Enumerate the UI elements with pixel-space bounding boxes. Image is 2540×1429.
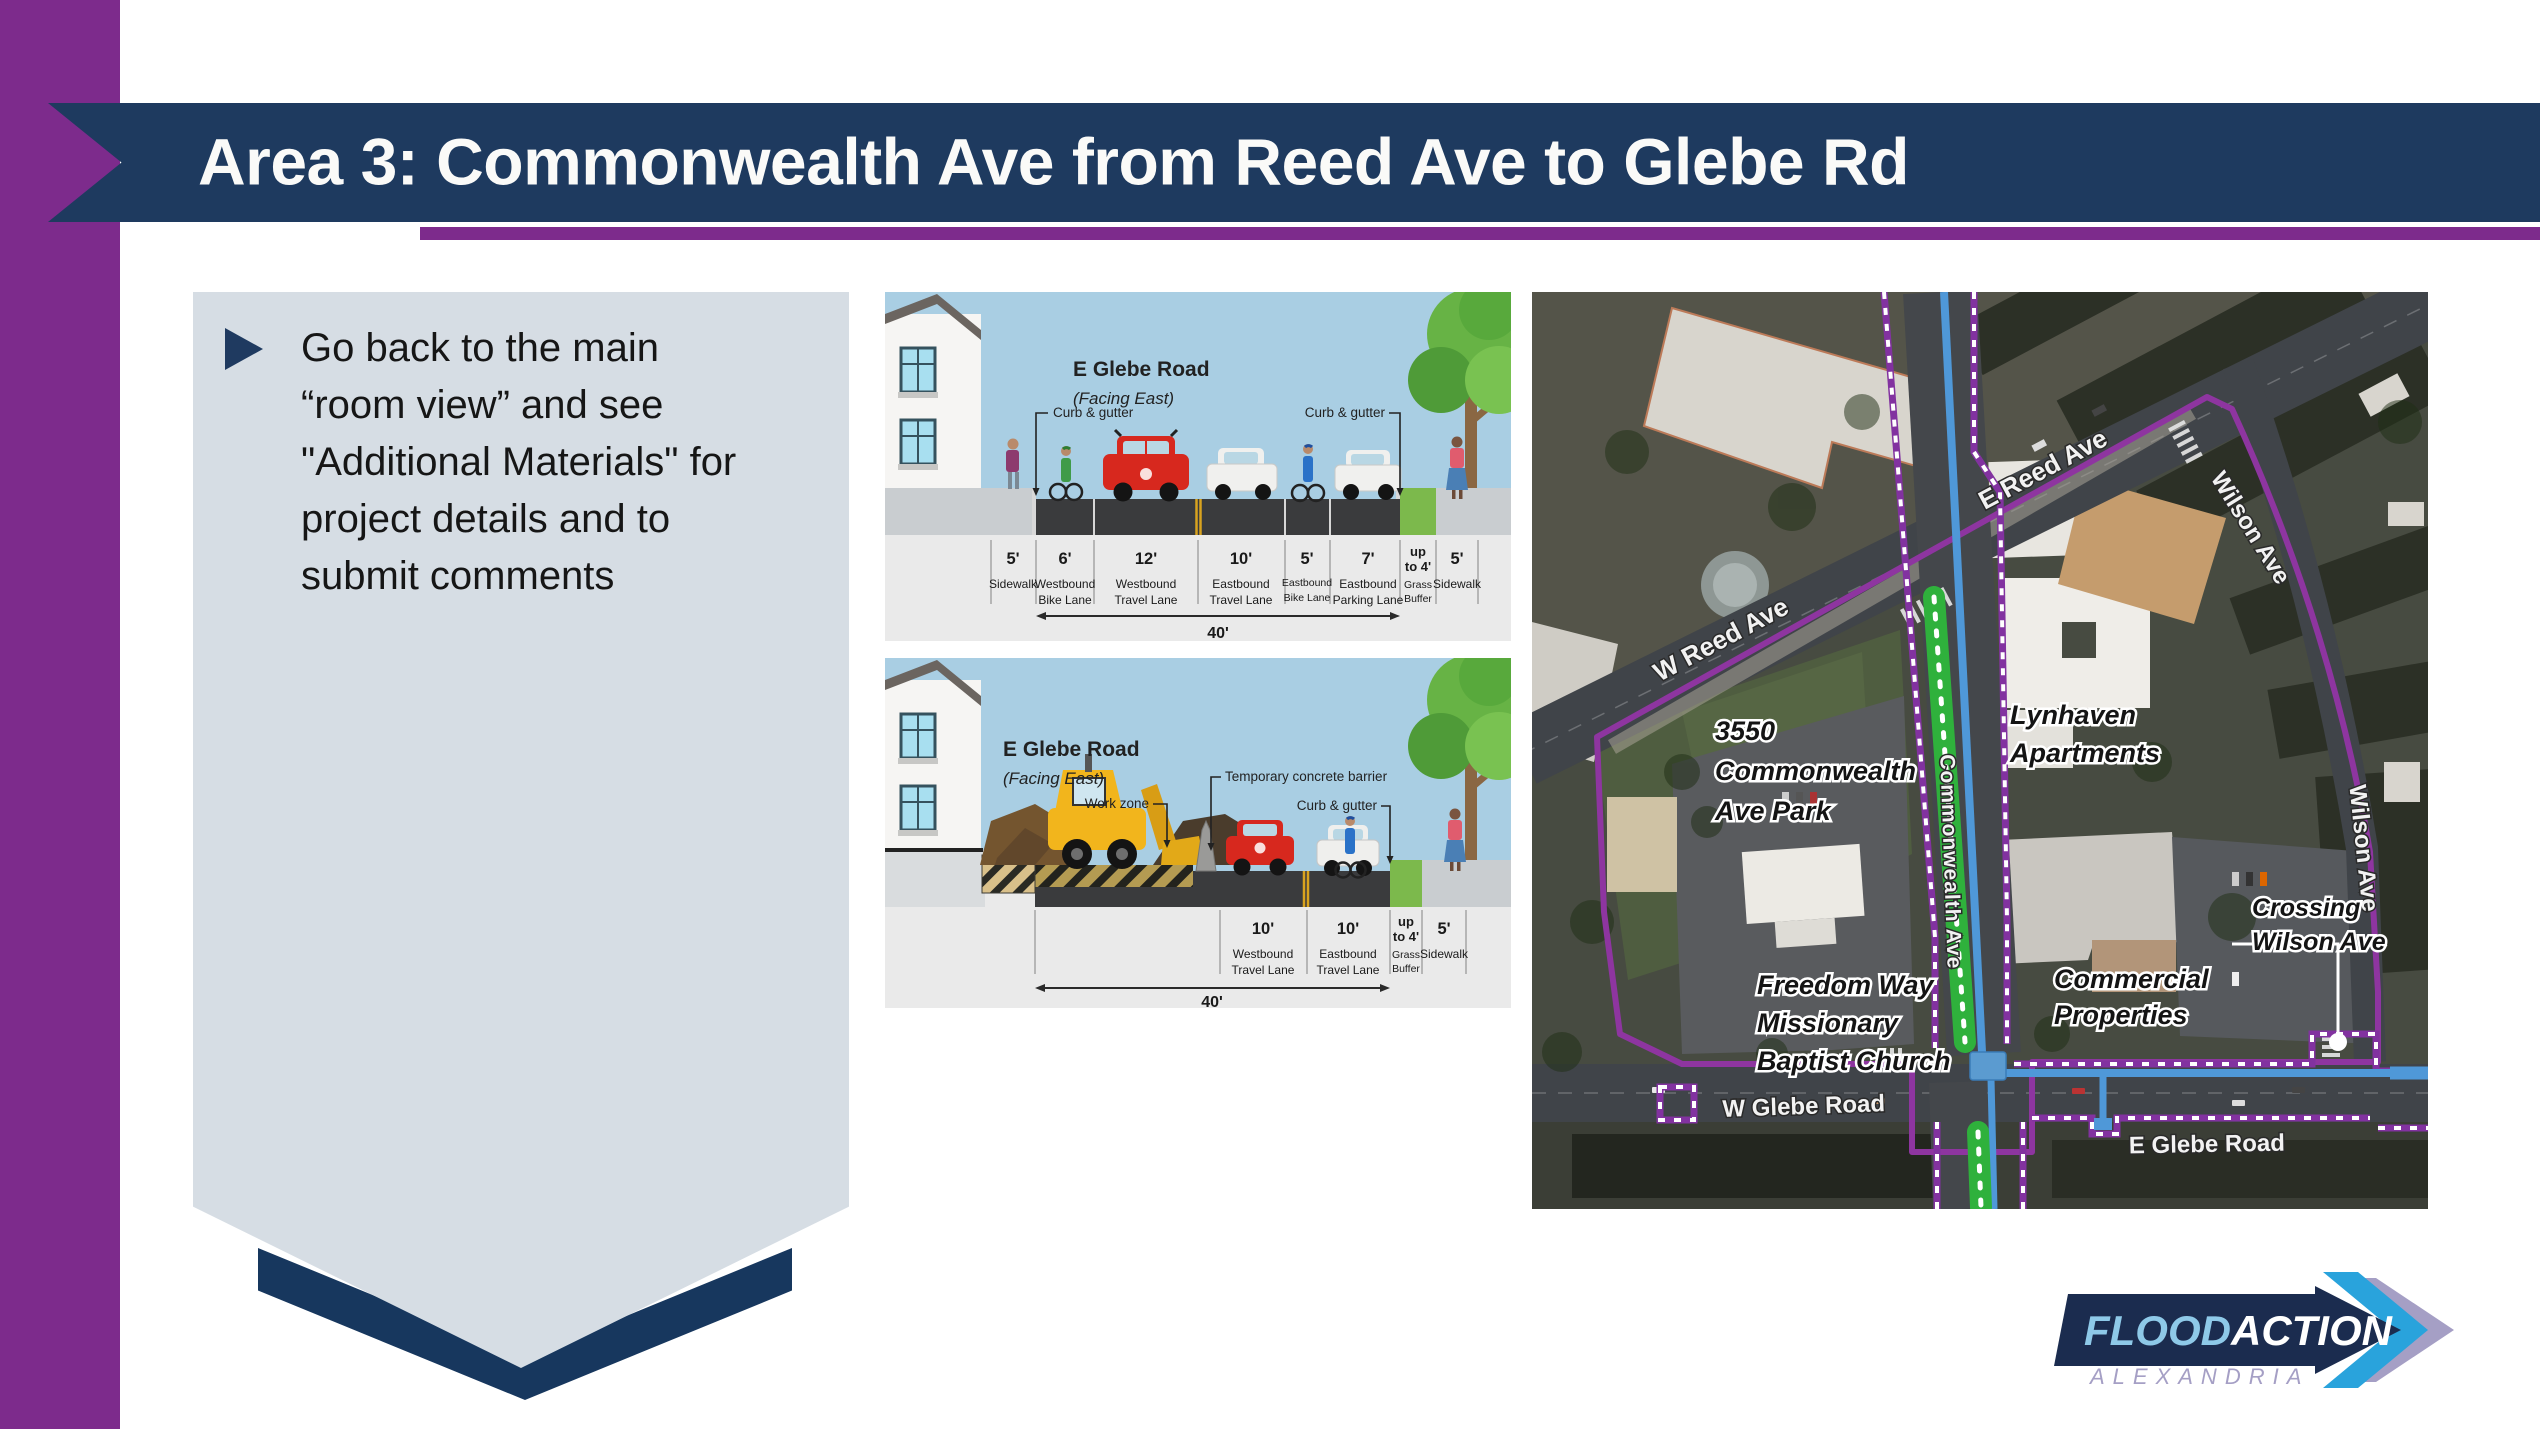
- label-w-glebe: W Glebe Road: [1722, 1090, 1886, 1123]
- svg-text:Westbound: Westbound: [1116, 577, 1177, 591]
- sidewalk-right: [1436, 488, 1511, 535]
- diagram-title: E Glebe Road: [1073, 358, 1210, 381]
- building-illustration: [885, 660, 981, 850]
- logo-wordmark: FLOODACTION: [2084, 1307, 2394, 1354]
- svg-text:Travel Lane: Travel Lane: [1317, 963, 1380, 977]
- banner-underline: [420, 227, 2540, 240]
- callout-work-zone: Work zone: [1085, 796, 1149, 811]
- svg-text:Grass: Grass: [1392, 949, 1420, 961]
- floodaction-logo: FLOODACTION ALEXANDRIA: [2028, 1268, 2468, 1408]
- label-e-glebe: E Glebe Road: [2129, 1130, 2285, 1160]
- svg-text:10': 10': [1337, 920, 1359, 938]
- svg-text:Travel Lane: Travel Lane: [1232, 963, 1295, 977]
- svg-text:Parking Lane: Parking Lane: [1333, 593, 1404, 607]
- svg-text:10': 10': [1252, 920, 1274, 938]
- label-park: 3550: [1715, 716, 1775, 746]
- label-church: Freedom Way: [1757, 970, 1936, 1000]
- callout-curb-left: Curb & gutter: [1053, 405, 1134, 420]
- svg-text:Missionary: Missionary: [1757, 1008, 1900, 1038]
- svg-text:Properties: Properties: [2054, 1000, 2188, 1030]
- stream-node: [1970, 1052, 2006, 1080]
- diagram-title: E Glebe Road: [1003, 738, 1140, 761]
- instruction-line: submit comments: [301, 548, 736, 605]
- svg-text:Ave Park: Ave Park: [1714, 796, 1833, 826]
- svg-text:Westbound: Westbound: [1035, 577, 1096, 591]
- svg-text:Eastbound: Eastbound: [1319, 947, 1376, 961]
- label-lynhaven: Lynhaven: [2010, 700, 2136, 730]
- diagram-subtitle: (Facing East): [1003, 769, 1104, 788]
- title-banner: Area 3: Commonwealth Ave from Reed Ave t…: [48, 103, 2540, 222]
- svg-text:up: up: [1410, 544, 1426, 559]
- svg-text:Eastbound: Eastbound: [1282, 577, 1332, 589]
- callout-curb-right: Curb & gutter: [1305, 405, 1386, 420]
- svg-text:5': 5': [1437, 920, 1450, 938]
- svg-text:to 4': to 4': [1405, 559, 1431, 574]
- svg-text:12': 12': [1135, 550, 1157, 568]
- instruction-panel: Go back to the main “room view” and see …: [193, 292, 849, 1368]
- cross-section-existing: E Glebe Road (Facing East) Curb & gutter…: [885, 292, 1511, 641]
- svg-text:Travel Lane: Travel Lane: [1210, 593, 1273, 607]
- grass-buffer: [1400, 488, 1436, 535]
- instruction-line: project details and to: [301, 491, 736, 548]
- svg-text:5': 5': [1450, 550, 1463, 568]
- sidewalk-right: [1422, 860, 1511, 907]
- roadway: [1036, 499, 1400, 535]
- bullet-row: Go back to the main “room view” and see …: [225, 320, 736, 605]
- instruction-line: “room view” and see: [301, 377, 736, 434]
- slide: Area 3: Commonwealth Ave from Reed Ave t…: [0, 0, 2540, 1429]
- callout-barrier: Temporary concrete barrier: [1225, 769, 1388, 784]
- svg-text:5': 5': [1006, 550, 1019, 568]
- svg-text:Travel Lane: Travel Lane: [1115, 593, 1178, 607]
- building-sw: [1607, 797, 1677, 892]
- svg-text:up: up: [1398, 914, 1414, 929]
- svg-text:Wilson Ave: Wilson Ave: [2252, 928, 2386, 956]
- svg-text:Baptist Church: Baptist Church: [1757, 1046, 1951, 1076]
- svg-text:40': 40': [1201, 994, 1223, 1008]
- svg-text:Apartments: Apartments: [2009, 738, 2160, 768]
- svg-text:Sidewalk: Sidewalk: [989, 577, 1038, 591]
- svg-text:Sidewalk: Sidewalk: [1420, 947, 1469, 961]
- logo-city: ALEXANDRIA: [2088, 1364, 2309, 1389]
- svg-text:Commonwealth: Commonwealth: [1715, 756, 1916, 786]
- svg-text:Bike Lane: Bike Lane: [1284, 592, 1331, 604]
- grass-buffer: [1390, 860, 1422, 907]
- svg-text:10': 10': [1230, 550, 1252, 568]
- closed-sidewalk: [885, 850, 985, 907]
- callout-curb: Curb & gutter: [1297, 798, 1378, 813]
- work-zone-hatch: [1035, 865, 1193, 887]
- cross-section-construction: E Glebe Road (Facing East) Work zone Tem…: [885, 658, 1511, 1008]
- instruction-text: Go back to the main “room view” and see …: [301, 320, 736, 605]
- svg-text:Eastbound: Eastbound: [1339, 577, 1396, 591]
- svg-text:Westbound: Westbound: [1233, 947, 1294, 961]
- svg-text:5': 5': [1300, 550, 1313, 568]
- label-crossing: Crossing: [2252, 894, 2360, 922]
- svg-text:Grass: Grass: [1404, 579, 1432, 591]
- svg-text:Eastbound: Eastbound: [1212, 577, 1269, 591]
- svg-text:7': 7': [1361, 550, 1374, 568]
- sidewalk-left: [885, 488, 1036, 535]
- instruction-line: "Additional Materials" for: [301, 434, 736, 491]
- bullet-icon: [225, 328, 263, 370]
- building-illustration: [885, 294, 981, 488]
- slide-title: Area 3: Commonwealth Ave from Reed Ave t…: [198, 123, 1909, 199]
- svg-text:Sidewalk: Sidewalk: [1433, 577, 1482, 591]
- svg-text:Buffer: Buffer: [1392, 963, 1420, 975]
- svg-text:to 4': to 4': [1393, 929, 1419, 944]
- label-commercial: Commercial: [2054, 964, 2209, 994]
- svg-text:Buffer: Buffer: [1404, 593, 1432, 605]
- site-map: E Reed Ave W Reed Ave Wilson Ave Wilson …: [1532, 292, 2428, 1209]
- svg-text:Bike Lane: Bike Lane: [1038, 593, 1092, 607]
- svg-text:6': 6': [1058, 550, 1071, 568]
- svg-text:40': 40': [1207, 625, 1229, 641]
- instruction-line: Go back to the main: [301, 320, 736, 377]
